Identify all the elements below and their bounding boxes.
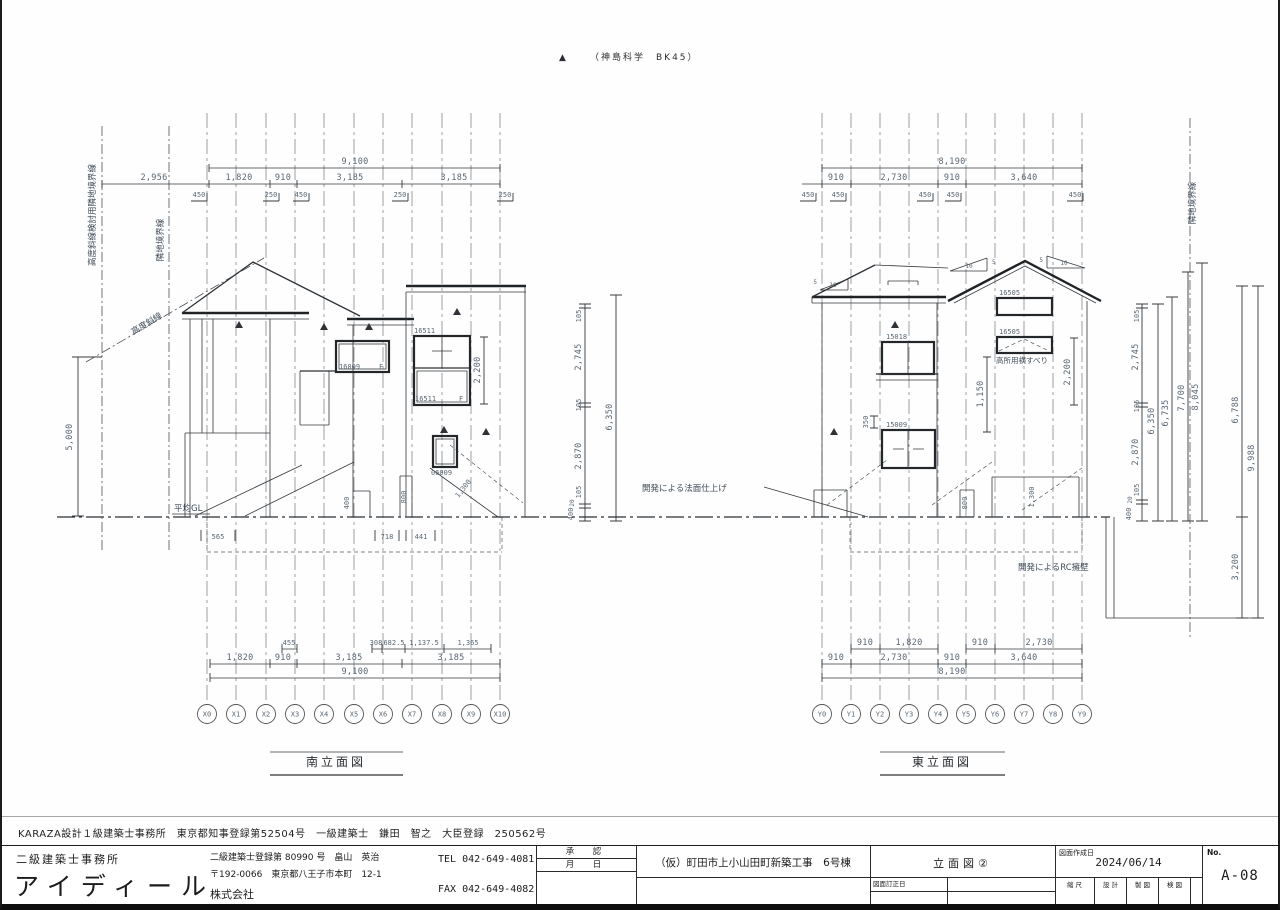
- window-label: F: [379, 363, 383, 371]
- dim-label: 3,185: [336, 173, 363, 183]
- window-label: 16505: [999, 289, 1020, 297]
- dim-label: 910: [944, 173, 960, 183]
- dim-label: 450: [295, 191, 308, 199]
- dim-label: 400: [567, 508, 575, 521]
- slope-label: 10: [965, 263, 973, 270]
- dim-label: 1,820: [226, 653, 253, 663]
- dim-label: 105: [575, 310, 583, 323]
- dim-label: 8,045: [1191, 383, 1201, 410]
- slope-label: 5: [992, 259, 996, 266]
- corporation-label: 株式会社: [210, 886, 254, 902]
- dim-label: 1,820: [225, 173, 252, 183]
- revision-row: 図面訂正日: [870, 878, 1055, 892]
- south-grid-bubbles: X0 X1 X2 X3 X4 X5 X6 X7 X8 X9 X10: [198, 705, 510, 724]
- grid-bubble-label: Y0: [818, 711, 826, 719]
- dim-label: 9,100: [341, 157, 368, 167]
- dim-label: 910: [275, 173, 291, 183]
- grid-bubble-label: X8: [438, 711, 446, 719]
- dim-label: 2,956: [140, 173, 167, 183]
- window-label: F: [459, 395, 463, 403]
- south-left-dim: [72, 357, 102, 516]
- east-subgrade-dashed: [827, 460, 1082, 552]
- south-roof-slopes: [182, 262, 360, 316]
- dim-label: 450: [1069, 191, 1082, 199]
- registration-line: 二級建築士登録第 80990 号 畠山 英治: [210, 850, 379, 863]
- dim-label: 682.5: [383, 639, 404, 647]
- dim-label: 6,788: [1231, 396, 1241, 423]
- dim-label: 3,640: [1010, 173, 1037, 183]
- dim-label: 1,300: [454, 478, 473, 500]
- dim-label: 910: [828, 173, 844, 183]
- grid-bubble-label: Y3: [905, 711, 913, 719]
- grid-bubble-label: X3: [291, 711, 299, 719]
- east-view-title: 東立面図: [912, 754, 972, 769]
- sheet-number: A-08: [1202, 868, 1278, 884]
- window-label: 16511: [415, 395, 436, 403]
- south-gridlines: [207, 113, 500, 704]
- boundary-label-long: 高度斜線検討用隣地境界線: [87, 164, 98, 267]
- title-block-divider: [636, 846, 637, 904]
- scale-cell: 縮 尺: [1055, 878, 1095, 905]
- dim-label: 800: [961, 497, 969, 510]
- dim-label: 8,190: [938, 667, 965, 677]
- slope-label: 5: [1039, 257, 1043, 264]
- phone-number: TEL 042-649-4081: [438, 854, 534, 865]
- rc-wall-note: 開発によるRC擁壁: [1018, 562, 1089, 573]
- east-roof-thick: [812, 261, 1101, 301]
- dim-label: 718: [381, 533, 394, 541]
- slope-label: 10: [829, 282, 837, 289]
- dim-label: 455: [283, 639, 296, 647]
- dim-label: 3,640: [1010, 653, 1037, 663]
- roof-marker-icon: ▲: [559, 53, 568, 63]
- dim-label: 910: [944, 653, 960, 663]
- grid-bubble-label: X4: [320, 711, 328, 719]
- dim-label: 250: [394, 191, 407, 199]
- dim-label: 7,700: [1177, 384, 1187, 411]
- east-elevation-drawing: 隣地境界線 8,190 910 2,730 910 3,640 450 450 …: [642, 113, 1264, 775]
- dim-label: 350: [862, 416, 870, 429]
- dim-label: 2,870: [574, 442, 584, 469]
- dim-label: 400: [343, 497, 351, 510]
- dim-label: 1,365: [457, 639, 478, 647]
- window-15009-detail: [893, 430, 924, 468]
- grid-bubble-label: Y5: [962, 711, 970, 719]
- slope-label: 5: [813, 279, 817, 286]
- material-note: （神島科学 BK45）: [590, 51, 699, 63]
- dim-label: 105: [1133, 310, 1141, 323]
- dim-label: 2,730: [880, 173, 907, 183]
- title-block: 二級建築士事務所 アイディール 二級建築士登録第 80990 号 畠山 英治 〒…: [2, 845, 1278, 904]
- drawing-sheet: ▲ （神島科学 BK45） 高度斜線検討用隣地境界線 隣地境界線 高度斜線 9,…: [0, 0, 1280, 910]
- south-foundation-dashed: [207, 517, 502, 552]
- dim-label: 20: [569, 499, 576, 507]
- south-elevation-drawing: 高度斜線検討用隣地境界線 隣地境界線 高度斜線 9,100 2,956 1,82…: [65, 113, 622, 775]
- south-view-title: 南立面図: [306, 754, 366, 769]
- slant-label: 高度斜線: [129, 310, 164, 337]
- dim-label: 3,185: [437, 653, 464, 663]
- office-name: アイディール: [14, 867, 215, 903]
- dim-label: 6,350: [605, 403, 615, 430]
- slope-finish-note: 開発による法面仕上げ: [642, 483, 727, 494]
- grid-bubble-label: X5: [350, 711, 358, 719]
- slope-label: 10: [1060, 260, 1068, 267]
- dim-label: 105: [575, 486, 583, 499]
- dim-label: 1,300: [1028, 486, 1036, 507]
- dim-label: 105: [1133, 484, 1141, 497]
- window-label: 16511: [414, 327, 435, 335]
- approval-date-cell: 月 日: [536, 859, 636, 872]
- south-offset-ticks: [191, 193, 513, 201]
- window-label: 16009: [339, 363, 360, 371]
- project-cell-divider: [636, 877, 870, 878]
- dim-label: 450: [802, 191, 815, 199]
- sheet-title: 立面図②: [870, 855, 1055, 871]
- grid-bubble-label: Y2: [876, 711, 884, 719]
- approval-cell: 承 認: [536, 846, 636, 859]
- revision-table: 図面訂正日: [870, 877, 1055, 905]
- dim-label: 910: [828, 653, 844, 663]
- project-name: （仮）町田市上小山田町新築工事 6号棟: [642, 855, 864, 870]
- dim-label: 105: [575, 399, 583, 412]
- gl-label: 平均GL: [174, 503, 203, 514]
- dim-label: 1,150: [976, 380, 986, 407]
- dim-label: 2,730: [880, 653, 907, 663]
- license-text: KARAZA設計１級建築士事務所 東京都知事登録第52504号 一級建築士 鎌田…: [18, 825, 546, 840]
- dim-label: 450: [832, 191, 845, 199]
- window-16505-top: [997, 298, 1052, 315]
- grid-bubble-label: Y8: [1049, 711, 1057, 719]
- window-15009: [882, 430, 935, 468]
- east-grid-bubbles: Y0 Y1 Y2 Y3 Y4 Y5 Y6 Y7 Y8 Y9: [813, 705, 1092, 724]
- grid-bubble-label: Y4: [934, 711, 942, 719]
- window-label: 15009: [886, 421, 907, 429]
- grid-bubble-label: X10: [494, 711, 507, 719]
- dim-label: 3,185: [440, 173, 467, 183]
- east-gridlines: [822, 113, 1082, 704]
- dim-label: 6,350: [1147, 407, 1157, 434]
- dim-label: 565: [212, 533, 225, 541]
- grid-bubble-label: Y7: [1020, 711, 1028, 719]
- window-label: 06009: [431, 469, 452, 477]
- grid-bubble-label: X9: [467, 711, 475, 719]
- dim-label: 6,735: [1161, 399, 1171, 426]
- dim-label: 3,185: [335, 653, 362, 663]
- grid-bubble-label: Y1: [847, 711, 855, 719]
- created-date: 2024/06/14: [1055, 856, 1202, 869]
- south-boundary-lines: [102, 126, 169, 552]
- draft-cell: 製 図: [1127, 878, 1159, 905]
- dim-label: 105: [1133, 400, 1141, 413]
- dim-label: 441: [415, 533, 428, 541]
- stamp-boxes: 縮 尺 設 計 製 図 検 図: [1055, 877, 1202, 905]
- dim-label: 308: [370, 639, 383, 647]
- high-window-note: 高所用横すべり: [996, 355, 1048, 365]
- address-line: 〒192-0066 東京都八王子市本町 12-1: [210, 867, 382, 880]
- grid-bubble-label: Y9: [1078, 711, 1086, 719]
- window-06009: [433, 436, 457, 467]
- dim-label: 9,100: [341, 667, 368, 677]
- window-label: 16505: [999, 328, 1020, 336]
- dim-label: 2,745: [1131, 343, 1141, 370]
- dim-label: 450: [193, 191, 206, 199]
- dim-label: 2,745: [574, 343, 584, 370]
- sheet-number-label: No.: [1207, 848, 1221, 857]
- fax-number: FAX 042-649-4082: [438, 884, 534, 895]
- dim-label: 250: [265, 191, 278, 199]
- dim-label: 910: [972, 638, 988, 648]
- dim-label: 5,000: [65, 423, 75, 450]
- boundary-label: 隣地境界線: [155, 218, 166, 261]
- dim-label: 450: [947, 191, 960, 199]
- dim-label: 250: [499, 191, 512, 199]
- dim-label: 1,137.5: [409, 639, 439, 647]
- slope-note-leader: [764, 487, 868, 517]
- east-subgrade-lines: [814, 477, 1079, 517]
- grid-bubble-label: X1: [232, 711, 240, 719]
- east-350-dim: [870, 416, 878, 428]
- grid-bubble-label: X0: [203, 711, 211, 719]
- license-strip: KARAZA設計１級建築士事務所 東京都知事登録第52504号 一級建築士 鎌田…: [2, 816, 1278, 845]
- grid-bubble-label: X2: [262, 711, 270, 719]
- dim-label: 1,820: [895, 638, 922, 648]
- dim-label: 3,200: [1231, 553, 1241, 580]
- window-label: 15018: [886, 333, 907, 341]
- dim-label: 20: [1127, 496, 1134, 504]
- dim-label: 450: [919, 191, 932, 199]
- dim-label: 2,870: [1131, 438, 1141, 465]
- east-walls: [822, 301, 1087, 517]
- grid-bubble-label: X7: [408, 711, 416, 719]
- revision-row: [870, 892, 1055, 906]
- dim-label: 910: [857, 638, 873, 648]
- design-cell: 設 計: [1095, 878, 1127, 905]
- check-cell: 検 図: [1159, 878, 1191, 905]
- dim-label: 8,190: [938, 157, 965, 167]
- grid-bubble-label: X6: [379, 711, 387, 719]
- dim-label: 2,730: [1025, 638, 1052, 648]
- dim-label: 800: [400, 491, 408, 504]
- dim-label: 910: [275, 653, 291, 663]
- dim-label: 2,200: [473, 356, 483, 383]
- dim-label: 9,988: [1247, 444, 1257, 471]
- window-06009-inner: [436, 439, 454, 464]
- dim-label: 2,200: [1063, 358, 1073, 385]
- dim-label: 400: [1125, 508, 1133, 521]
- boundary-label: 隣地境界線: [1187, 181, 1198, 224]
- revision-date-label: 図面訂正日: [870, 878, 948, 891]
- revision-cell: [870, 892, 948, 906]
- elevation-drawings: ▲ （神島科学 BK45） 高度斜線検討用隣地境界線 隣地境界線 高度斜線 9,…: [2, 0, 1280, 845]
- grid-bubble-label: Y6: [991, 711, 999, 719]
- office-type: 二級建築士事務所: [16, 851, 120, 867]
